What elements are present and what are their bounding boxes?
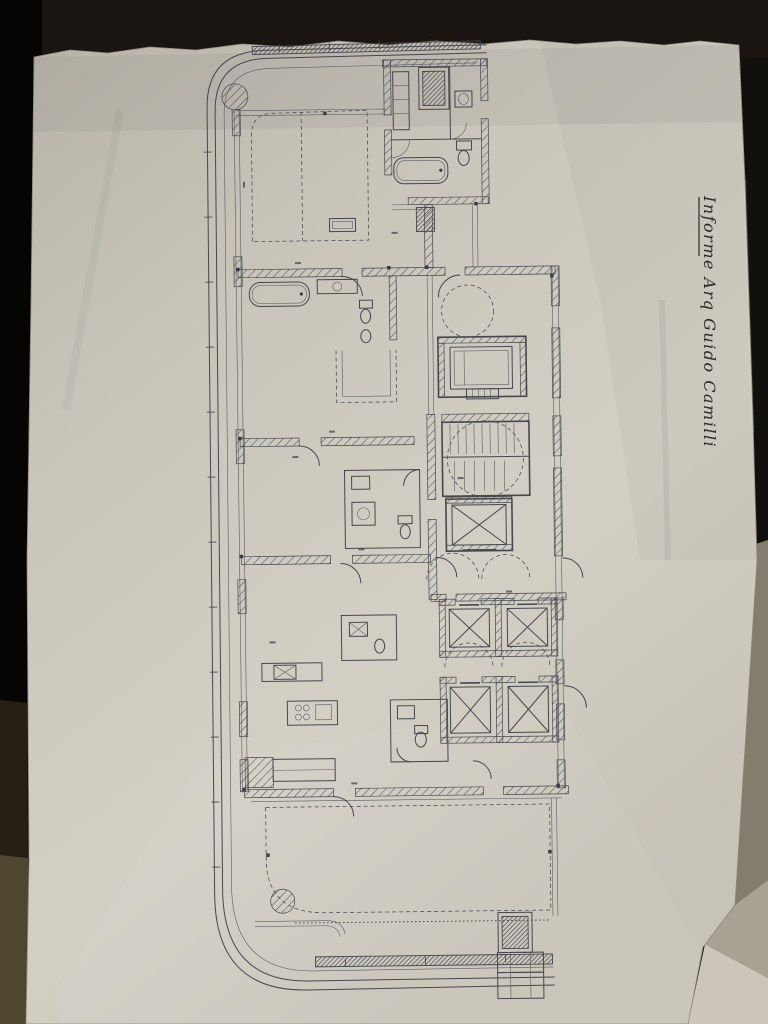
hatched-pier-icon	[502, 916, 528, 948]
shaft-icon	[423, 71, 445, 105]
hatched-column-icon	[222, 84, 248, 110]
paper-sheet	[26, 40, 757, 1024]
photo-of-floor-plan: Informe Arq Guido Camilli	[0, 0, 768, 1024]
handwritten-annotation: Informe Arq Guido Camilli	[699, 195, 719, 448]
annotation-text: Informe Arq Guido Camilli	[700, 195, 719, 448]
